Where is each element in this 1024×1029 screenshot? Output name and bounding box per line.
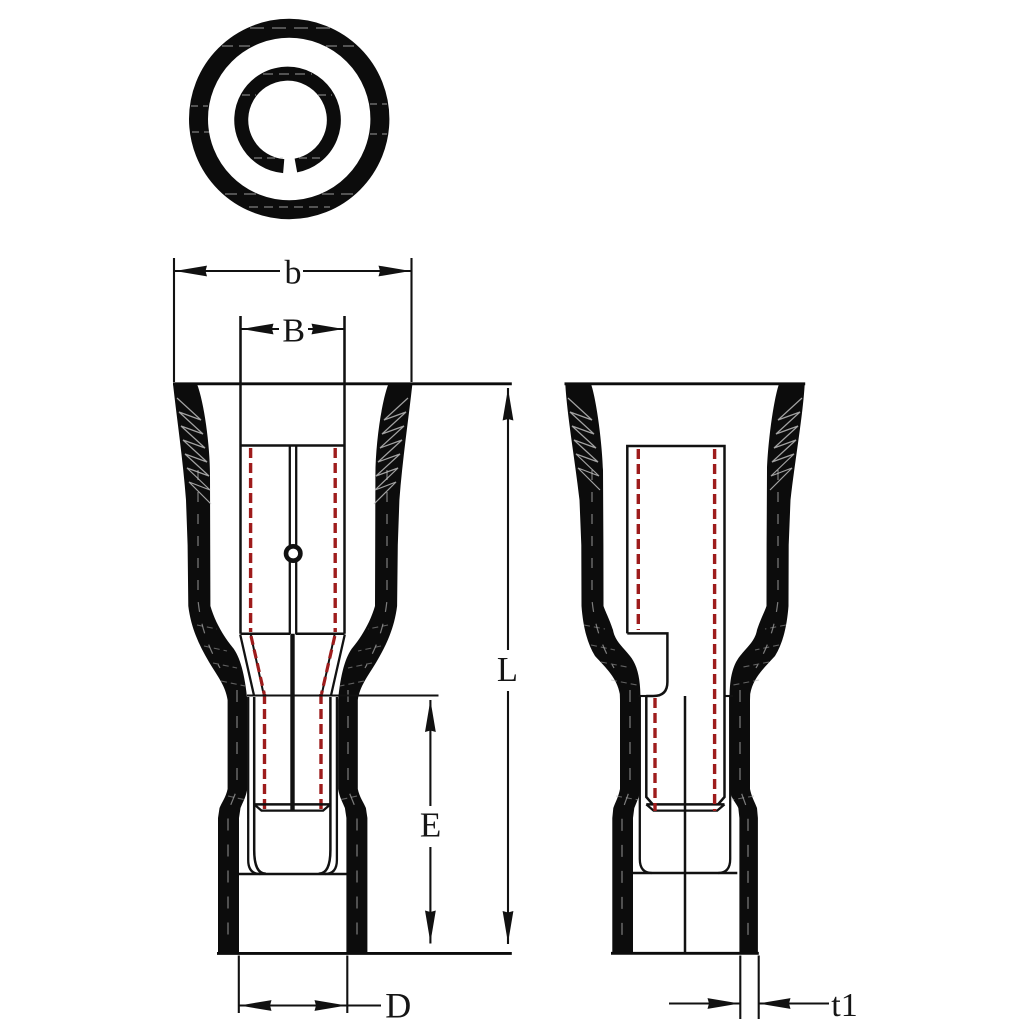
svg-text:D: D — [385, 986, 411, 1025]
svg-text:L: L — [497, 651, 518, 689]
svg-text:E: E — [420, 806, 441, 845]
svg-text:B: B — [282, 313, 305, 350]
svg-text:t1: t1 — [831, 987, 857, 1024]
svg-text:b: b — [285, 255, 302, 292]
